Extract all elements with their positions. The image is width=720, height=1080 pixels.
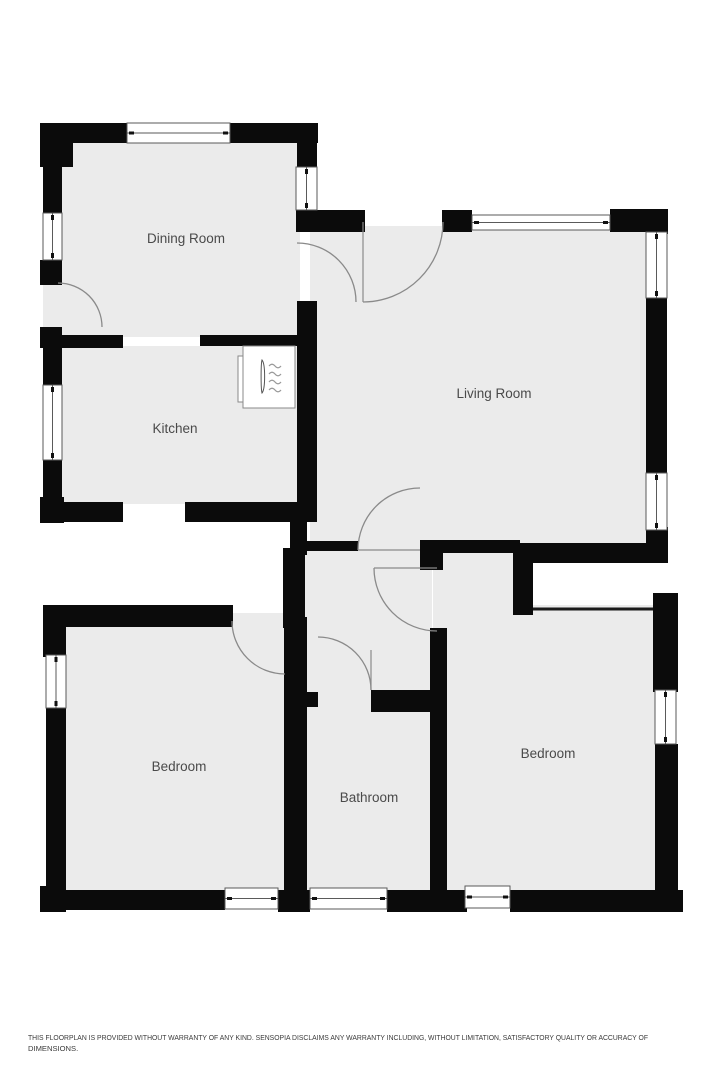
disclaimer: THIS FLOORPLAN IS PROVIDED WITHOUT WARRA… (28, 1033, 648, 1053)
window (225, 888, 278, 909)
wall (230, 123, 318, 143)
room-label-bathroom: Bathroom (340, 790, 399, 805)
wall (646, 298, 667, 473)
window (296, 167, 317, 210)
wall (43, 460, 62, 500)
window (472, 215, 610, 230)
wall (653, 593, 678, 692)
wall (284, 617, 307, 890)
window (655, 690, 676, 744)
wall (387, 890, 467, 912)
entry-door-gap (43, 285, 63, 327)
wall (46, 708, 66, 890)
floorplan-canvas: Dining Room Kitchen Living Room Bedroom … (0, 0, 720, 1080)
window (646, 232, 667, 298)
room-floor-hall-bathroom (303, 551, 432, 892)
room-label-bedroom-left: Bedroom (152, 759, 207, 774)
disclaimer-line-1: THIS FLOORPLAN IS PROVIDED WITHOUT WARRA… (28, 1033, 648, 1042)
wall (43, 890, 225, 910)
wall (62, 335, 123, 348)
window (310, 888, 387, 909)
wall (296, 541, 358, 551)
wall (655, 744, 678, 912)
wall (510, 890, 683, 912)
wall (200, 335, 310, 346)
wall (328, 210, 365, 232)
wall (646, 209, 668, 234)
wall (513, 543, 668, 563)
disclaimer-line-2: DIMENSIONS. (28, 1044, 78, 1053)
window (465, 886, 510, 908)
wall (442, 210, 472, 232)
wall (46, 627, 66, 655)
wall (40, 502, 123, 522)
window (43, 213, 62, 260)
wall (40, 327, 62, 348)
room-label-bedroom-right: Bedroom (521, 746, 576, 761)
wall (185, 502, 297, 522)
window (46, 655, 66, 708)
window (127, 123, 230, 143)
wall (43, 348, 62, 385)
wall (40, 260, 62, 285)
wall (297, 330, 317, 522)
room-label-living: Living Room (456, 386, 531, 401)
wall (420, 540, 443, 570)
wall (283, 548, 305, 628)
floor-areas (43, 140, 657, 892)
wall (40, 123, 127, 143)
wall (430, 628, 447, 890)
room-label-dining: Dining Room (147, 231, 225, 246)
room-floor-bedroom-left (60, 613, 287, 892)
wall (513, 553, 533, 615)
wall (278, 890, 310, 912)
room-label-kitchen: Kitchen (152, 421, 197, 436)
wall (297, 143, 317, 169)
window (43, 385, 62, 460)
radiator-icon (238, 346, 295, 408)
window (646, 473, 667, 530)
wall (43, 143, 62, 213)
wall (43, 605, 233, 627)
wall (443, 540, 520, 553)
wall (371, 690, 432, 712)
